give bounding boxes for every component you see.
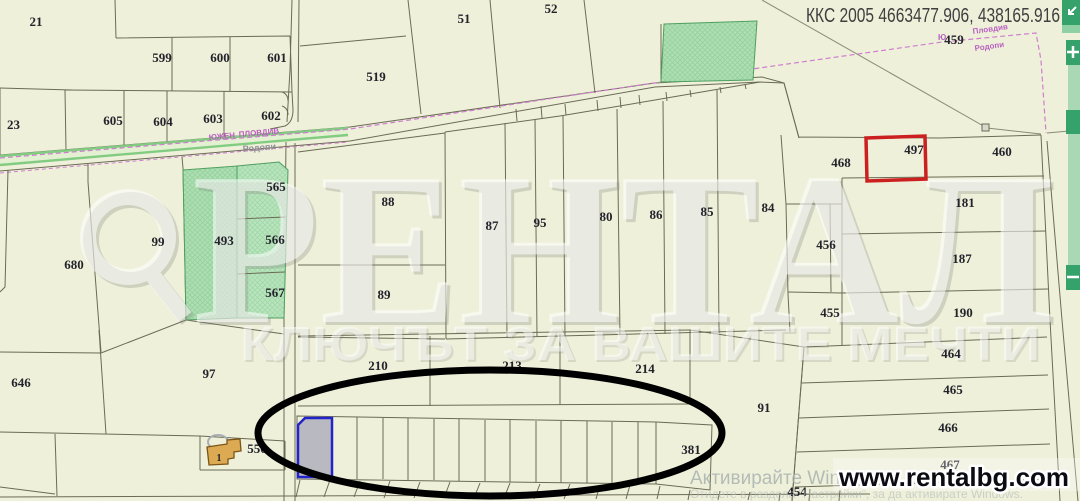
- svg-text:493: 493: [214, 233, 234, 248]
- svg-text:Ю: Ю: [938, 33, 946, 42]
- svg-text:210: 210: [368, 358, 388, 373]
- svg-text:187: 187: [952, 251, 972, 266]
- svg-text:459: 459: [944, 32, 964, 47]
- svg-text:21: 21: [30, 14, 43, 29]
- svg-text:80: 80: [600, 209, 613, 224]
- svg-text:97: 97: [203, 366, 217, 381]
- svg-text:381: 381: [681, 442, 701, 457]
- svg-text:214: 214: [635, 361, 655, 376]
- svg-text:95: 95: [534, 215, 548, 230]
- svg-text:567: 567: [265, 285, 285, 300]
- svg-text:91: 91: [758, 400, 771, 415]
- svg-text:190: 190: [953, 305, 973, 320]
- svg-text:84: 84: [762, 200, 776, 215]
- svg-text:86: 86: [650, 207, 664, 222]
- svg-text:181: 181: [955, 195, 975, 210]
- svg-text:456: 456: [816, 237, 836, 252]
- svg-text:565: 565: [266, 179, 286, 194]
- svg-text:23: 23: [7, 117, 21, 132]
- svg-text:468: 468: [831, 155, 851, 170]
- svg-text:99: 99: [152, 234, 166, 249]
- svg-text:455: 455: [820, 305, 840, 320]
- svg-text:ККС 2005 4663477.906, 438165.9: ККС 2005 4663477.906, 438165.916: [806, 5, 1060, 27]
- svg-text:465: 465: [943, 382, 963, 397]
- svg-text:599: 599: [152, 50, 172, 65]
- svg-text:www.rentalbg.com: www.rentalbg.com: [838, 462, 1069, 492]
- svg-text:600: 600: [210, 50, 230, 65]
- svg-text:52: 52: [545, 1, 558, 16]
- svg-text:602: 602: [261, 108, 281, 123]
- svg-text:1: 1: [217, 453, 222, 464]
- svg-text:460: 460: [992, 144, 1012, 159]
- svg-text:604: 604: [153, 114, 173, 129]
- svg-text:85: 85: [701, 204, 715, 219]
- svg-text:601: 601: [267, 50, 287, 65]
- svg-text:89: 89: [378, 287, 392, 302]
- svg-text:519: 519: [366, 69, 386, 84]
- svg-text:497: 497: [904, 142, 924, 157]
- svg-text:603: 603: [203, 111, 223, 126]
- svg-text:646: 646: [11, 375, 31, 390]
- svg-text:88: 88: [382, 194, 396, 209]
- svg-text:87: 87: [486, 218, 500, 233]
- svg-text:680: 680: [64, 257, 84, 272]
- svg-text:605: 605: [103, 113, 123, 128]
- svg-text:466: 466: [938, 420, 958, 435]
- svg-text:51: 51: [458, 11, 471, 26]
- svg-text:464: 464: [941, 346, 961, 361]
- svg-text:566: 566: [265, 232, 285, 247]
